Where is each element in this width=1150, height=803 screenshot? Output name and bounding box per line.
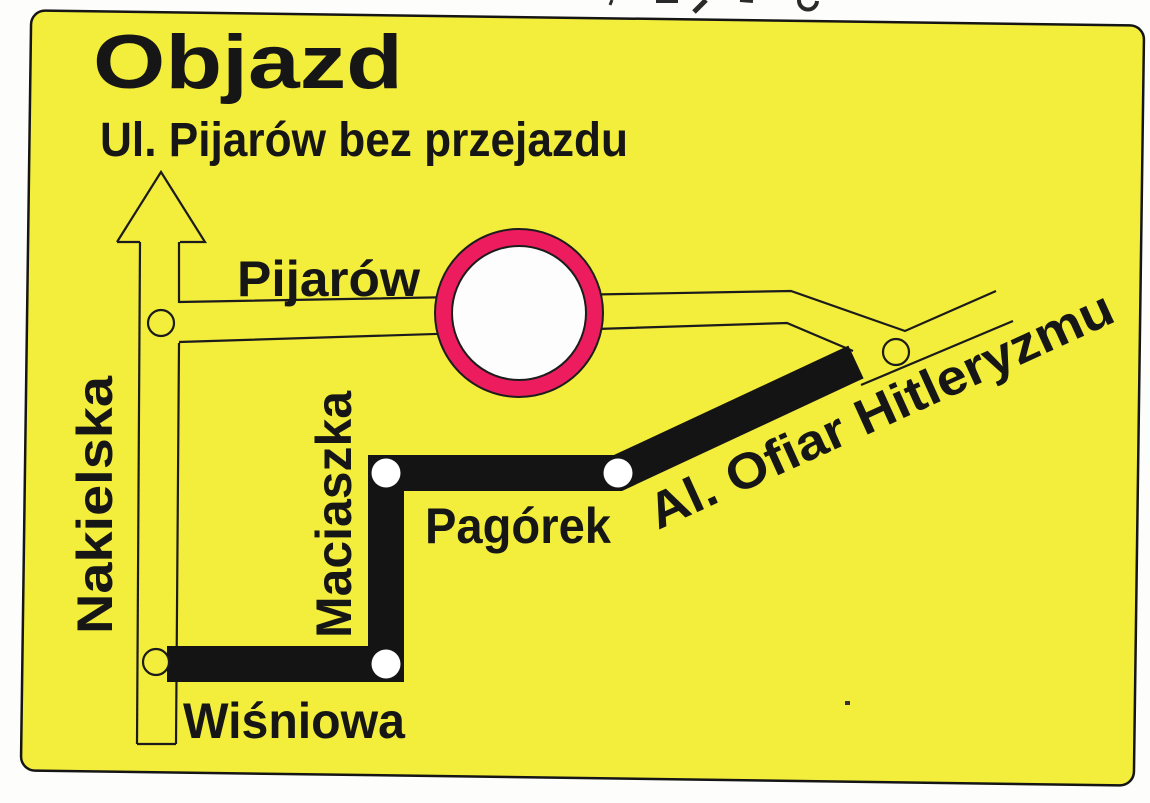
handwriting-fragment: [799, 0, 817, 10]
street-label-wisniowa: Wiśniowa: [183, 693, 406, 749]
road-junction-circle: [148, 310, 174, 336]
scanned-detour-map: Objazd Ul. Pijarów bez przejazdu Pijarów…: [0, 0, 1150, 803]
road-junction-circle: [883, 339, 909, 365]
handwriting-fragment: [694, 0, 706, 12]
handwriting-fragment: [740, 0, 753, 1]
street-label-pijarow: Pijarów: [237, 251, 420, 307]
road-junction-circle: [143, 649, 169, 675]
page-title: Objazd: [93, 20, 403, 105]
road-closed-sign: [435, 229, 603, 397]
street-label-maciaszka: Maciaszka: [306, 390, 362, 638]
route-junction-dot: [372, 650, 401, 679]
street-label-nakielska: Nakielska: [67, 375, 123, 634]
cropped-handwriting-fragments: [610, 0, 817, 12]
page-subtitle: Ul. Pijarów bez przejazdu: [100, 114, 628, 167]
detour-map-canvas: Objazd Ul. Pijarów bez przejazdu Pijarów…: [0, 0, 1150, 803]
scan-speck: [845, 701, 850, 705]
handwriting-fragment: [610, 0, 612, 5]
road-closed-sign-center: [452, 246, 586, 380]
route-junction-dot: [372, 459, 401, 488]
route-junction-dot: [604, 459, 633, 488]
street-label-pagorek: Pagórek: [425, 498, 611, 554]
